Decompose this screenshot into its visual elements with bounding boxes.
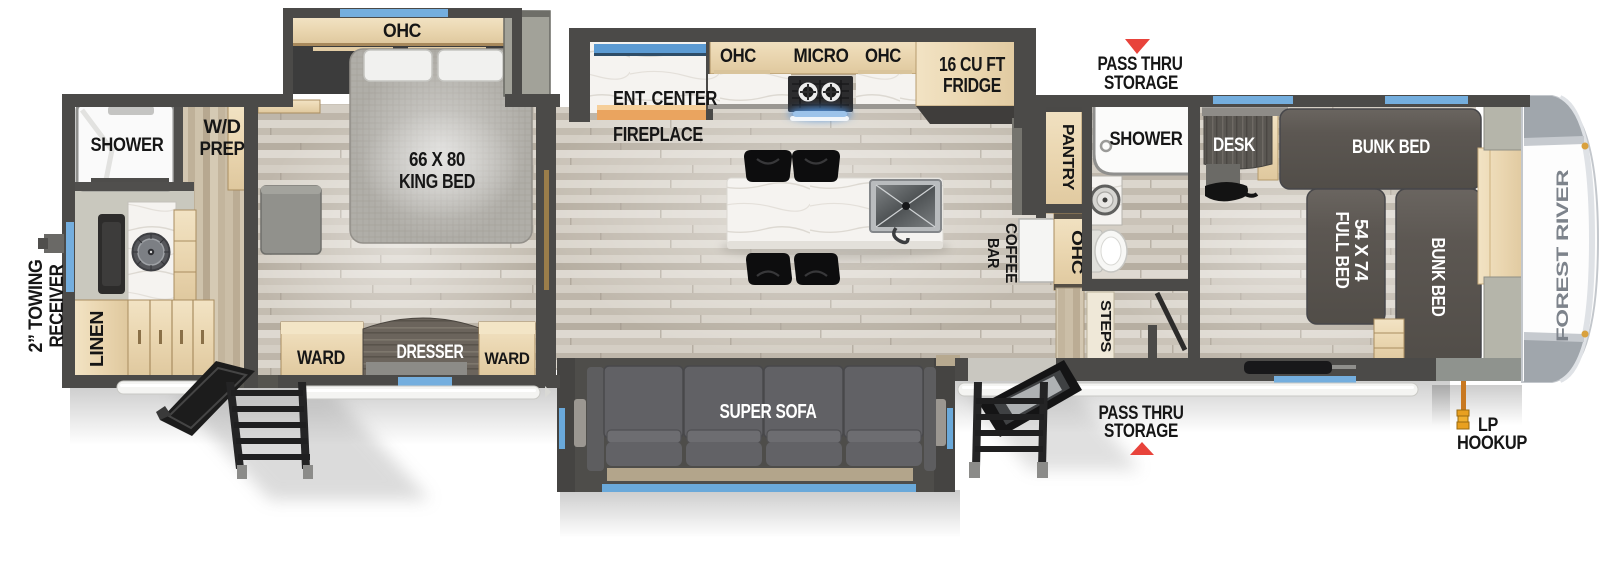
svg-text:STEPS: STEPS [1097,300,1114,352]
svg-text:HOOKUP: HOOKUP [1457,433,1528,454]
svg-text:WARD: WARD [485,349,530,368]
svg-text:66 X 80: 66 X 80 [409,149,465,171]
svg-text:SHOWER: SHOWER [1110,129,1184,150]
svg-text:COFFEE: COFFEE [1002,223,1019,284]
svg-text:FRIDGE: FRIDGE [943,75,1001,97]
svg-text:PANTRY: PANTRY [1059,124,1076,191]
svg-text:STORAGE: STORAGE [1104,73,1178,94]
svg-text:ENT. CENTER: ENT. CENTER [613,88,718,110]
svg-text:OHC: OHC [720,46,757,67]
svg-text:OHC: OHC [865,46,902,67]
svg-text:SHOWER: SHOWER [91,135,165,156]
svg-text:FULL BED: FULL BED [1332,212,1352,289]
svg-text:BUNK BED: BUNK BED [1428,238,1448,317]
svg-text:2” TOWING: 2” TOWING [26,260,47,353]
svg-text:OHC: OHC [383,21,422,42]
svg-text:W/D: W/D [204,117,241,138]
svg-text:BUNK BED: BUNK BED [1352,137,1430,158]
svg-text:MICRO: MICRO [794,46,849,67]
svg-text:PREP: PREP [200,139,246,160]
svg-text:PASS THRU: PASS THRU [1098,54,1183,75]
svg-text:FOREST RIVER: FOREST RIVER [1553,170,1572,342]
svg-text:16 CU FT: 16 CU FT [939,54,1005,76]
svg-text:WARD: WARD [297,348,345,369]
svg-text:SUPER SOFA: SUPER SOFA [720,401,817,423]
svg-text:FIREPLACE: FIREPLACE [613,124,703,146]
svg-text:RECEIVER: RECEIVER [47,264,68,348]
svg-text:STORAGE: STORAGE [1104,421,1178,442]
svg-text:LINEN: LINEN [87,311,107,367]
svg-text:BAR: BAR [984,238,1001,269]
svg-text:DRESSER: DRESSER [397,342,465,363]
svg-text:DESK: DESK [1213,135,1256,156]
svg-text:54 X 74: 54 X 74 [1351,219,1371,281]
svg-text:KING BED: KING BED [399,171,475,193]
